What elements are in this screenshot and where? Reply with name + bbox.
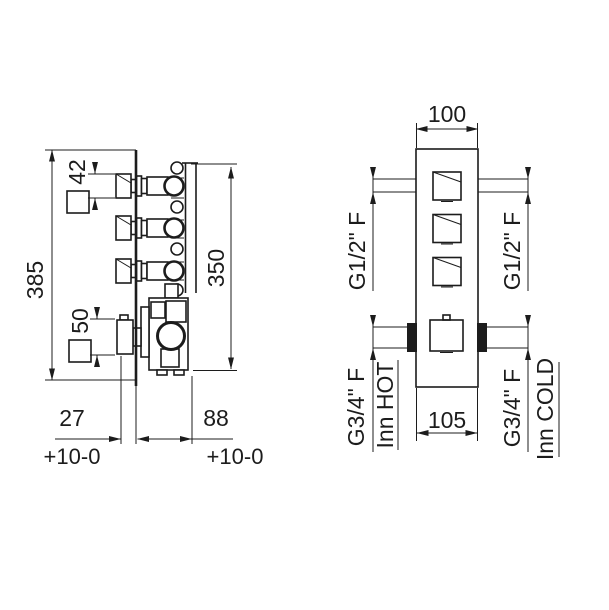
dim-27-label: 27 — [59, 405, 85, 431]
dim-350-label: 350 — [203, 249, 229, 287]
side-view: 385 42 50 350 — [22, 150, 263, 469]
outlet-right-label: G1/2" F — [499, 212, 525, 290]
inlet-right-name-label: Inn COLD — [532, 358, 558, 460]
dim-handle-square: 42 — [64, 159, 115, 213]
valve-unit-middle — [116, 216, 184, 240]
technical-drawing-page: 385 42 50 350 — [0, 0, 609, 610]
dim-100-label: 100 — [428, 101, 466, 127]
front-view: 100 105 G1/2" F G1/2" F — [343, 101, 559, 460]
dim-depth: 27 +10-0 88 +10-0 — [44, 356, 264, 469]
dim-27-tolerance: +10-0 — [44, 444, 101, 469]
outlet-right: G1/2" F — [478, 168, 528, 291]
dim-105-label: 105 — [428, 407, 466, 433]
valve-unit-top — [116, 174, 184, 198]
dim-50-label: 50 — [67, 308, 93, 334]
inlet-right: G3/4" F Inn COLD — [477, 315, 559, 460]
inlet-left: G3/4" F Inn HOT — [343, 315, 417, 452]
dim-42-label: 42 — [64, 159, 90, 185]
inlet-left-name-label: Inn HOT — [372, 362, 398, 449]
dim-valve-height: 350 — [191, 164, 237, 371]
dim-width-bottom: 105 — [417, 388, 478, 441]
dim-mixer-handle-square: 50 — [67, 307, 115, 367]
dim-width-top: 100 — [416, 101, 478, 148]
inlet-right-thread-label: G3/4" F — [499, 369, 525, 447]
dim-385-label: 385 — [22, 261, 48, 299]
inlet-right-port — [477, 323, 487, 352]
square-symbol — [67, 191, 89, 213]
valve-unit-bottom — [116, 259, 184, 283]
inlet-left-port — [407, 323, 417, 352]
outlet-left: G1/2" F — [344, 168, 416, 291]
outlet-left-label: G1/2" F — [344, 212, 370, 290]
inlet-left-thread-label: G3/4" F — [343, 368, 369, 446]
thermostatic-mixer — [117, 284, 188, 375]
thermostatic-valve-drawing: 385 42 50 350 — [0, 0, 609, 610]
dim-88-label: 88 — [203, 405, 229, 431]
dim-88-tolerance: +10-0 — [207, 444, 264, 469]
square-symbol — [69, 340, 91, 362]
